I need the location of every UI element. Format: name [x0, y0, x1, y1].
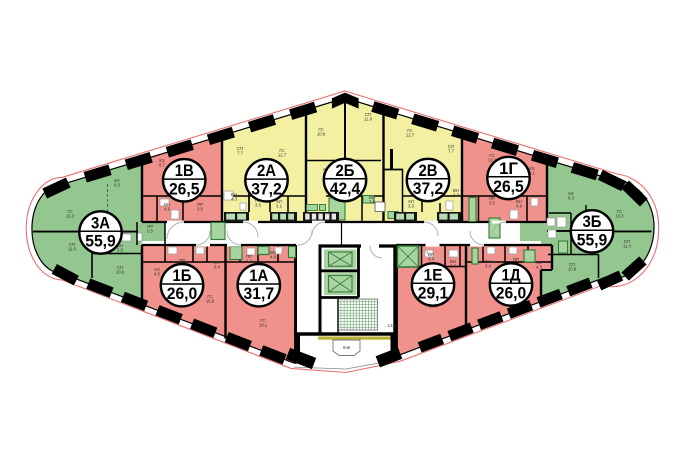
- svg-text:4.4: 4.4: [246, 259, 253, 264]
- svg-text:7.7: 7.7: [237, 151, 244, 156]
- svg-text:18.1: 18.1: [259, 323, 268, 328]
- svg-text:12.7: 12.7: [278, 153, 287, 158]
- svg-text:4.3: 4.3: [453, 193, 460, 198]
- svg-text:26,5: 26,5: [493, 177, 524, 196]
- svg-text:26,0: 26,0: [496, 284, 527, 303]
- svg-text:10.8: 10.8: [568, 267, 577, 272]
- svg-text:3.4: 3.4: [485, 264, 492, 269]
- svg-text:26,0: 26,0: [167, 284, 198, 303]
- svg-text:4.3: 4.3: [536, 265, 543, 270]
- svg-text:29,1: 29,1: [418, 284, 449, 303]
- svg-text:3.5: 3.5: [197, 207, 204, 212]
- svg-text:3.5: 3.5: [117, 248, 124, 253]
- svg-text:3А: 3А: [91, 213, 110, 232]
- svg-text:42,4: 42,4: [330, 179, 361, 198]
- svg-text:37,2: 37,2: [251, 179, 282, 198]
- svg-text:4.0: 4.0: [154, 272, 161, 277]
- svg-text:3Б: 3Б: [583, 212, 602, 231]
- svg-text:11.4: 11.4: [623, 244, 632, 249]
- svg-text:2.9: 2.9: [450, 264, 457, 269]
- svg-text:3.8: 3.8: [369, 200, 376, 205]
- svg-text:4.3: 4.3: [231, 197, 238, 202]
- svg-text:1Б: 1Б: [173, 266, 192, 285]
- svg-text:8.3: 8.3: [568, 196, 575, 201]
- svg-text:3.5: 3.5: [489, 201, 496, 206]
- svg-text:2Б: 2Б: [336, 161, 355, 180]
- svg-text:5.5: 5.5: [147, 229, 154, 234]
- svg-text:37,2: 37,2: [413, 179, 444, 198]
- svg-text:Кнв: Кнв: [343, 345, 351, 350]
- svg-text:11.8: 11.8: [364, 117, 373, 122]
- svg-text:55,9: 55,9: [85, 232, 116, 251]
- svg-text:8.3: 8.3: [114, 183, 121, 188]
- svg-text:6.7: 6.7: [159, 163, 166, 168]
- svg-text:55,9: 55,9: [577, 230, 608, 249]
- svg-text:14.3: 14.3: [388, 323, 397, 328]
- svg-text:4.6: 4.6: [516, 204, 523, 209]
- svg-text:26,5: 26,5: [169, 179, 200, 198]
- svg-text:1Е: 1Е: [424, 265, 443, 284]
- svg-text:10.0: 10.0: [116, 270, 125, 275]
- svg-text:7.7: 7.7: [448, 149, 455, 154]
- svg-text:1Г: 1Г: [499, 159, 518, 178]
- svg-text:3.5: 3.5: [255, 203, 262, 208]
- svg-text:16.3: 16.3: [615, 214, 624, 219]
- svg-text:31,7: 31,7: [244, 284, 275, 303]
- svg-text:4.4: 4.4: [428, 257, 435, 262]
- svg-text:15.8: 15.8: [206, 299, 215, 304]
- svg-text:4.6: 4.6: [164, 207, 171, 212]
- svg-text:4.0: 4.0: [270, 255, 277, 260]
- svg-text:3.4: 3.4: [214, 265, 221, 270]
- svg-text:3.5: 3.5: [408, 204, 415, 209]
- svg-text:1А: 1А: [249, 266, 268, 285]
- svg-text:3.1: 3.1: [276, 204, 283, 209]
- svg-text:1Д: 1Д: [502, 265, 521, 284]
- svg-text:2А: 2А: [257, 161, 276, 180]
- svg-text:1В: 1В: [175, 161, 194, 180]
- svg-text:16.3: 16.3: [66, 214, 75, 219]
- svg-text:10.9: 10.9: [317, 132, 326, 137]
- svg-text:12.7: 12.7: [406, 133, 415, 138]
- svg-text:11.0: 11.0: [68, 247, 77, 252]
- svg-text:2В: 2В: [419, 161, 438, 180]
